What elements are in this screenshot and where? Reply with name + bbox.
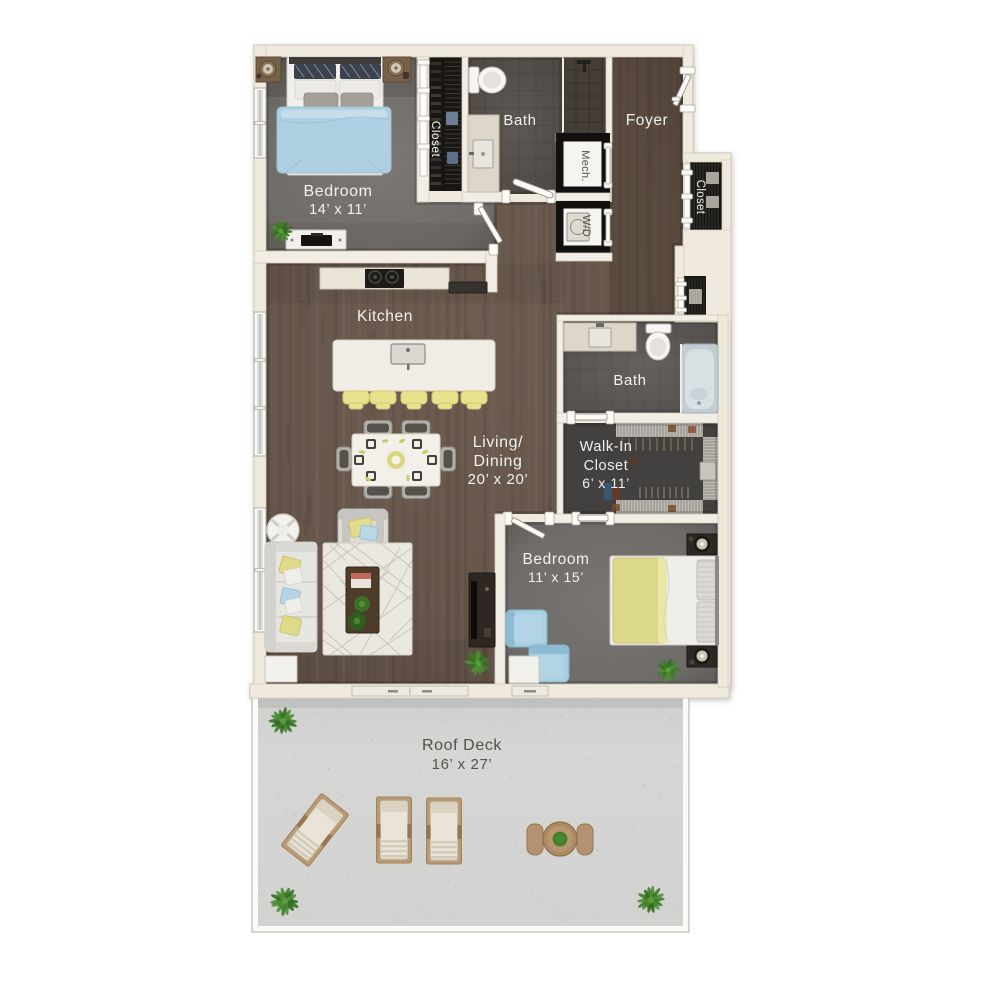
svg-text:Walk-In: Walk-In (580, 439, 633, 455)
svg-text:20’ x 20’: 20’ x 20’ (468, 471, 529, 488)
svg-text:11’ x 15’: 11’ x 15’ (528, 569, 584, 585)
svg-text:Mech.: Mech. (579, 150, 591, 181)
svg-text:Roof Deck: Roof Deck (422, 737, 502, 754)
svg-text:W/D: W/D (580, 215, 592, 237)
svg-text:Closet: Closet (584, 458, 629, 474)
svg-text:Kitchen: Kitchen (357, 308, 413, 325)
svg-text:Bedroom: Bedroom (303, 183, 372, 200)
svg-text:Foyer: Foyer (626, 112, 669, 129)
svg-text:16’ x 27’: 16’ x 27’ (432, 756, 493, 773)
svg-text:Closet: Closet (429, 121, 443, 158)
svg-text:Dining: Dining (474, 453, 523, 470)
svg-text:14’ x 11’: 14’ x 11’ (309, 202, 367, 218)
svg-text:Bath: Bath (613, 372, 646, 389)
svg-text:Closet: Closet (694, 180, 706, 215)
svg-text:Living/: Living/ (473, 434, 523, 451)
svg-text:6’ x 11’: 6’ x 11’ (582, 475, 630, 491)
svg-text:Bath: Bath (503, 112, 536, 129)
svg-text:Bedroom: Bedroom (522, 551, 589, 568)
